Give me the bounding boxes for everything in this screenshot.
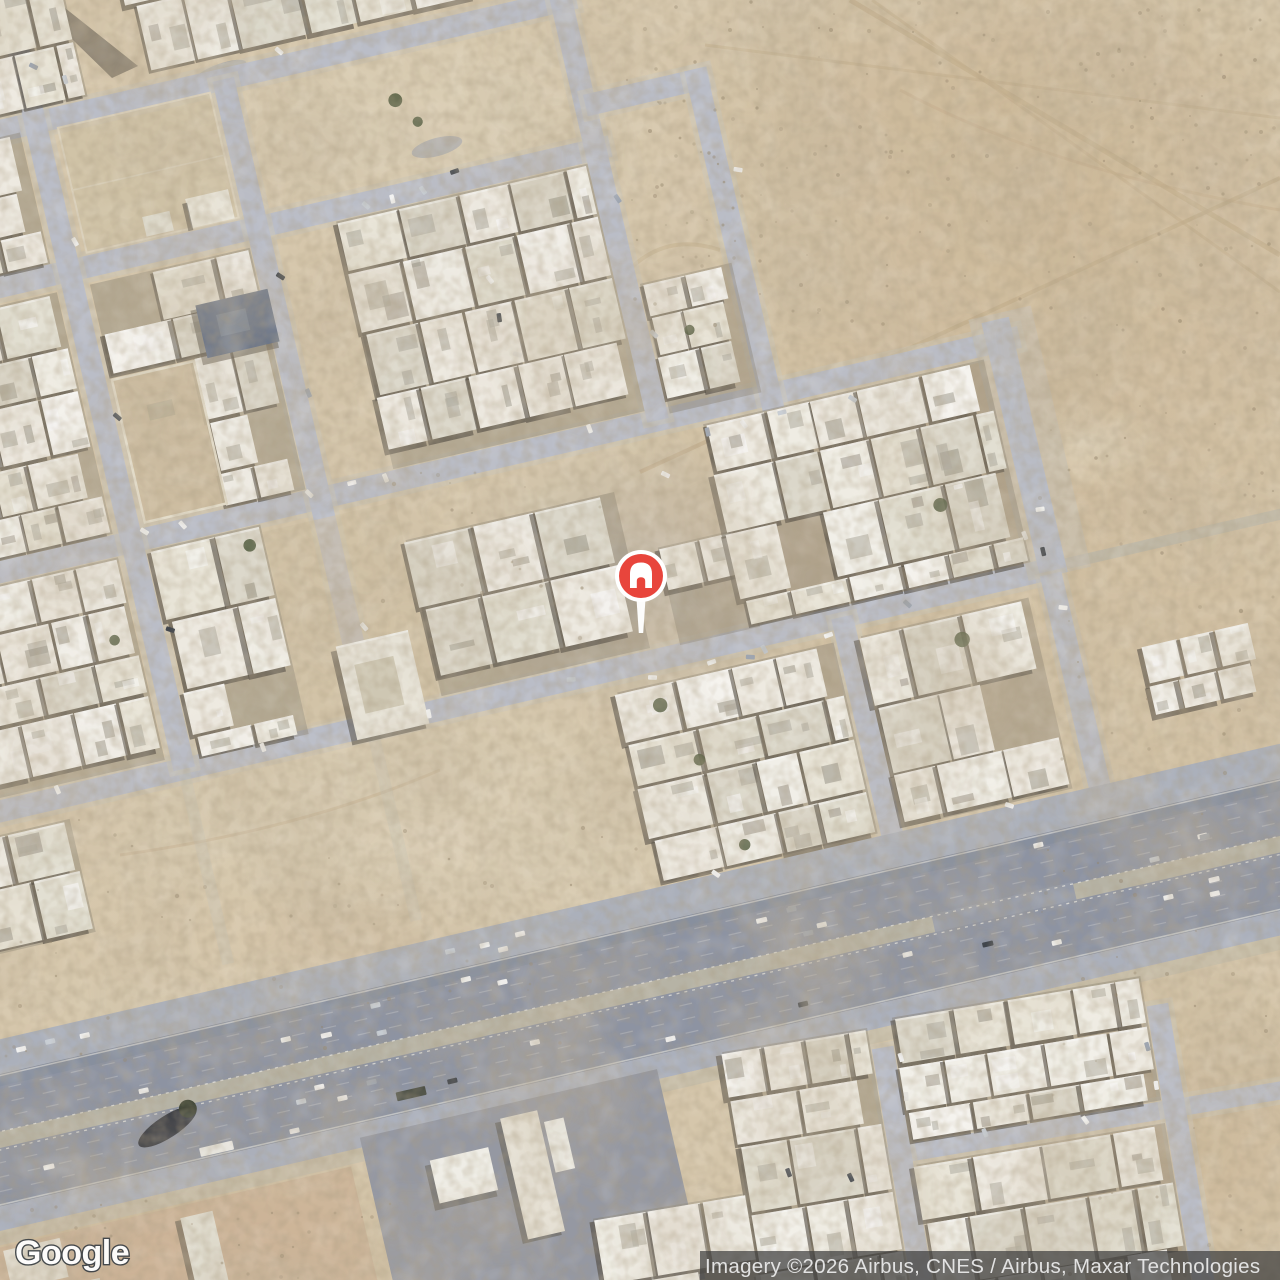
svg-text:Google: Google [15, 1234, 129, 1272]
svg-text:Imagery ©2026 Airbus, CNES / A: Imagery ©2026 Airbus, CNES / Airbus, Max… [705, 1255, 1260, 1278]
